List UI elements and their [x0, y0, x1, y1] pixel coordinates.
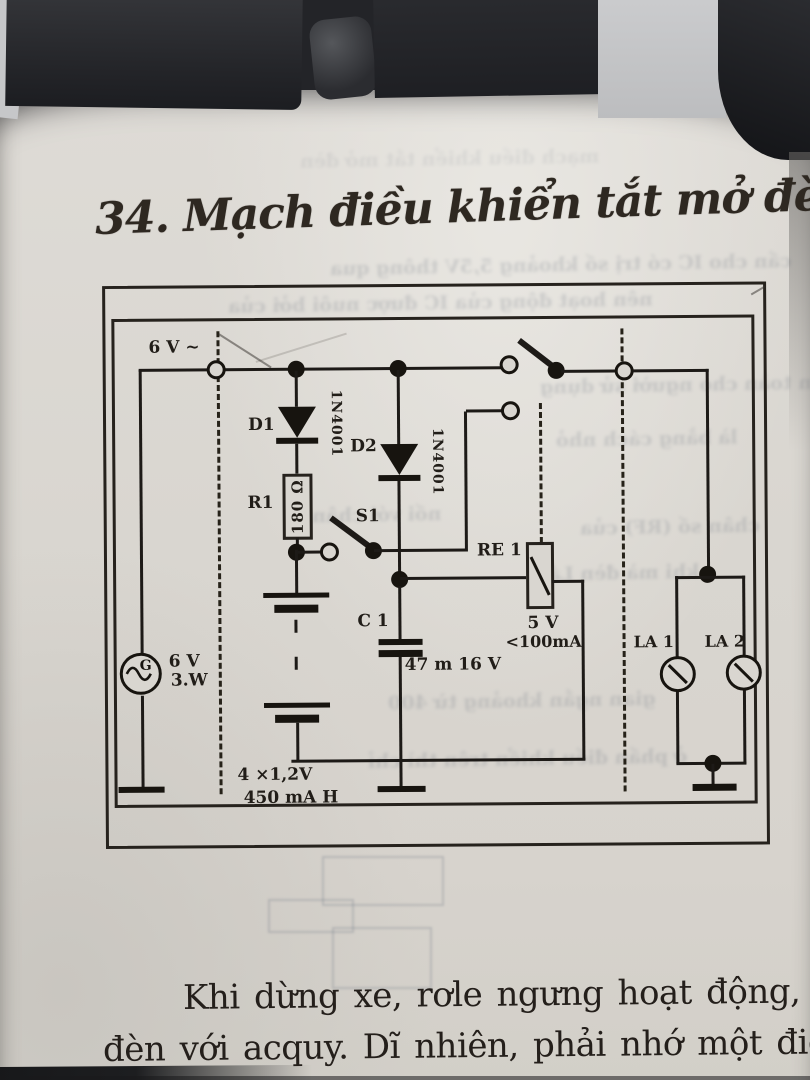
generator-watts-label: 3.W: [171, 670, 208, 690]
wire: [297, 551, 322, 554]
ground-icon: [119, 787, 165, 793]
body-text-line: đèn với acquy. Dĩ nhiên, phải nhớ một đi…: [103, 1022, 810, 1070]
resistor-icon: 180 Ω: [282, 474, 312, 540]
wire: [296, 723, 299, 762]
wire: [398, 586, 401, 640]
battery-cells-label: 4 ×1,2V: [237, 765, 312, 786]
ground-icon: [693, 784, 737, 791]
generator-volts-label: 6 V: [169, 651, 200, 671]
s1-label: S1: [356, 506, 380, 526]
wire: [633, 369, 709, 373]
relay-coil-icon: [526, 542, 554, 609]
generator-icon: G: [120, 653, 162, 695]
ground-icon: [378, 786, 426, 792]
d2-label: D2: [350, 436, 377, 456]
wire: [141, 696, 145, 788]
r1-value-label: 180 Ω: [288, 479, 306, 534]
body-text-line: Khi dừng xe, rơle ngưng hoạt động, tiế: [183, 971, 810, 1018]
ac-input-label: 6 V ~: [148, 337, 199, 357]
diode-icon: [380, 444, 418, 475]
wire: [295, 444, 298, 474]
junction-dot: [699, 566, 716, 583]
d1-part-label: 1N4001: [328, 390, 344, 458]
generator-symbol: G: [140, 658, 152, 674]
re1-label: RE 1: [477, 540, 522, 560]
battery-capacity-label: 450 mA H: [244, 787, 339, 808]
diode-icon: [278, 407, 316, 438]
d2-part-label: 1N4001: [429, 428, 445, 496]
wire: [675, 576, 745, 579]
c1-label: C 1: [357, 611, 388, 631]
terminal-icon: [207, 360, 226, 379]
wire: [397, 370, 401, 444]
wire: [295, 550, 298, 594]
la2-label: LA 2: [705, 632, 746, 651]
lamp-icon: [726, 654, 762, 690]
battery-cell-short-plate: [275, 715, 319, 723]
capacitor-icon: [379, 639, 423, 645]
wire: [676, 690, 680, 764]
wire: [743, 689, 747, 764]
re1-volts-label: 5 V: [527, 613, 558, 633]
battery-dash: [294, 620, 297, 633]
terminal-icon: [320, 542, 339, 561]
lamp-icon: [660, 656, 696, 692]
battery-dash: [295, 657, 298, 670]
circuit-diagram: 6 V ~ G 6 V 3.W D1 1N4001 180 Ω R1: [0, 0, 810, 1080]
wire: [552, 580, 584, 583]
relay-contact-terminal: [501, 401, 520, 420]
la1-label: LA 1: [634, 632, 675, 651]
relay-contact-terminal: [500, 355, 519, 374]
battery-cell-long-plate: [264, 702, 330, 707]
wire: [711, 764, 714, 785]
re1-current-label: <100mA: [506, 632, 582, 652]
battery-cell-long-plate: [263, 592, 329, 597]
wire: [561, 369, 616, 372]
c1-value-label: 47 m 16 V: [405, 654, 501, 675]
wire: [374, 549, 467, 553]
terminal-icon: [615, 361, 634, 380]
wire: [295, 371, 298, 407]
wire: [466, 409, 502, 412]
wire: [397, 481, 401, 573]
wire: [675, 576, 679, 658]
d1-label: D1: [248, 415, 275, 435]
wire: [399, 759, 402, 787]
circuit-inner-border: [111, 315, 757, 808]
battery-cell-short-plate: [274, 605, 318, 613]
r1-label: R1: [248, 493, 274, 513]
book-photo: mạch điều khiển tắt mở đèn cần cho IC có…: [0, 0, 810, 1080]
